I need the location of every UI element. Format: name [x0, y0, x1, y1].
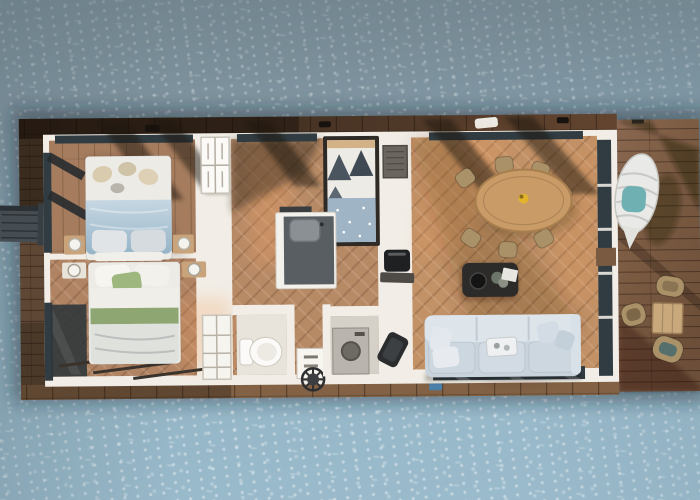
oven: [384, 250, 410, 272]
wardrobe: [201, 137, 229, 193]
master-bed: [85, 156, 172, 262]
nightstand-right: [173, 234, 194, 253]
sofa-throw: [432, 346, 460, 369]
left-side-deck: [19, 139, 45, 399]
fender: [429, 383, 442, 390]
gangplank: [0, 203, 47, 246]
floating-platform: [0, 113, 700, 400]
nightstand-left: [64, 235, 85, 254]
roof-cleat: [319, 121, 331, 127]
washing-machine: [333, 328, 369, 374]
terrace-door-opening: [596, 248, 616, 266]
dining-table: [475, 169, 572, 232]
centerpiece: [518, 194, 528, 204]
floorplan-svg: [0, 0, 700, 500]
utility-room: [322, 304, 379, 376]
bathroom: [232, 305, 295, 378]
sofa-tray: [486, 337, 517, 357]
nightstand-left: [62, 262, 86, 278]
shelf-unit: [203, 315, 232, 379]
house: [43, 116, 619, 393]
second-bed: [88, 262, 181, 365]
toilet: [240, 337, 282, 366]
kitchen-mat: [380, 272, 414, 283]
deck-cleat: [632, 120, 644, 124]
coffee-table: [460, 263, 518, 302]
nightstand-right: [182, 261, 206, 277]
terrace-table: [652, 303, 683, 334]
roof-cleat: [557, 117, 569, 123]
sofa: [425, 314, 582, 381]
teal-towel: [621, 185, 647, 212]
kitchen-counter: [276, 206, 337, 289]
stool: [302, 368, 324, 390]
houseboat-floorplan-render: [0, 0, 700, 500]
art-panel: [383, 146, 407, 178]
